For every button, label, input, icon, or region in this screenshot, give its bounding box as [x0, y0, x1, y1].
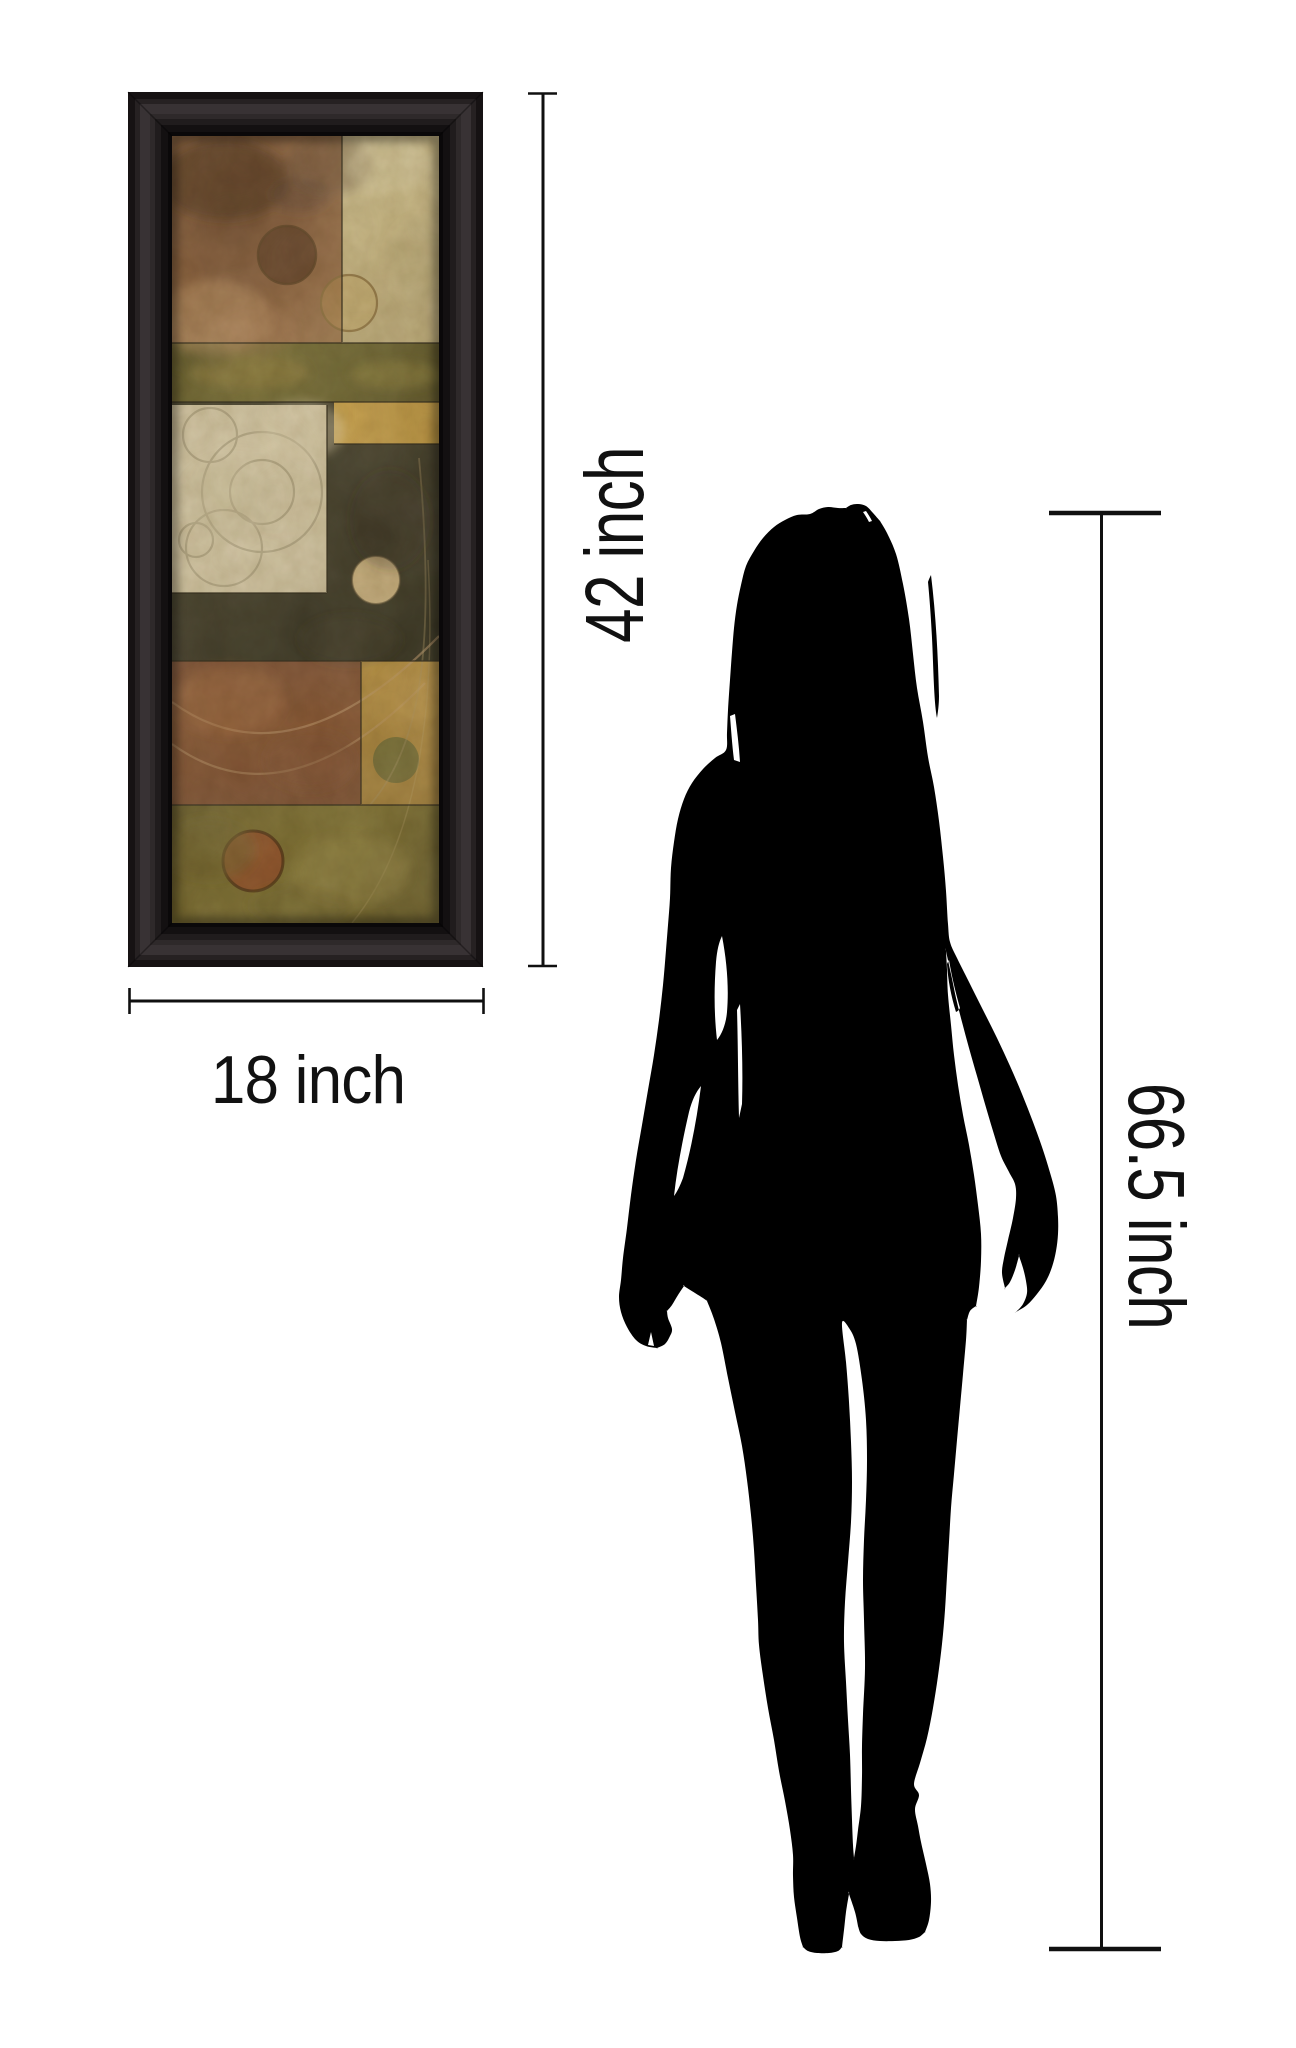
- svg-text:42 inch: 42 inch: [570, 447, 662, 643]
- svg-text:18 inch: 18 inch: [211, 1042, 405, 1118]
- svg-text:66.5 inch: 66.5 inch: [1111, 1083, 1199, 1329]
